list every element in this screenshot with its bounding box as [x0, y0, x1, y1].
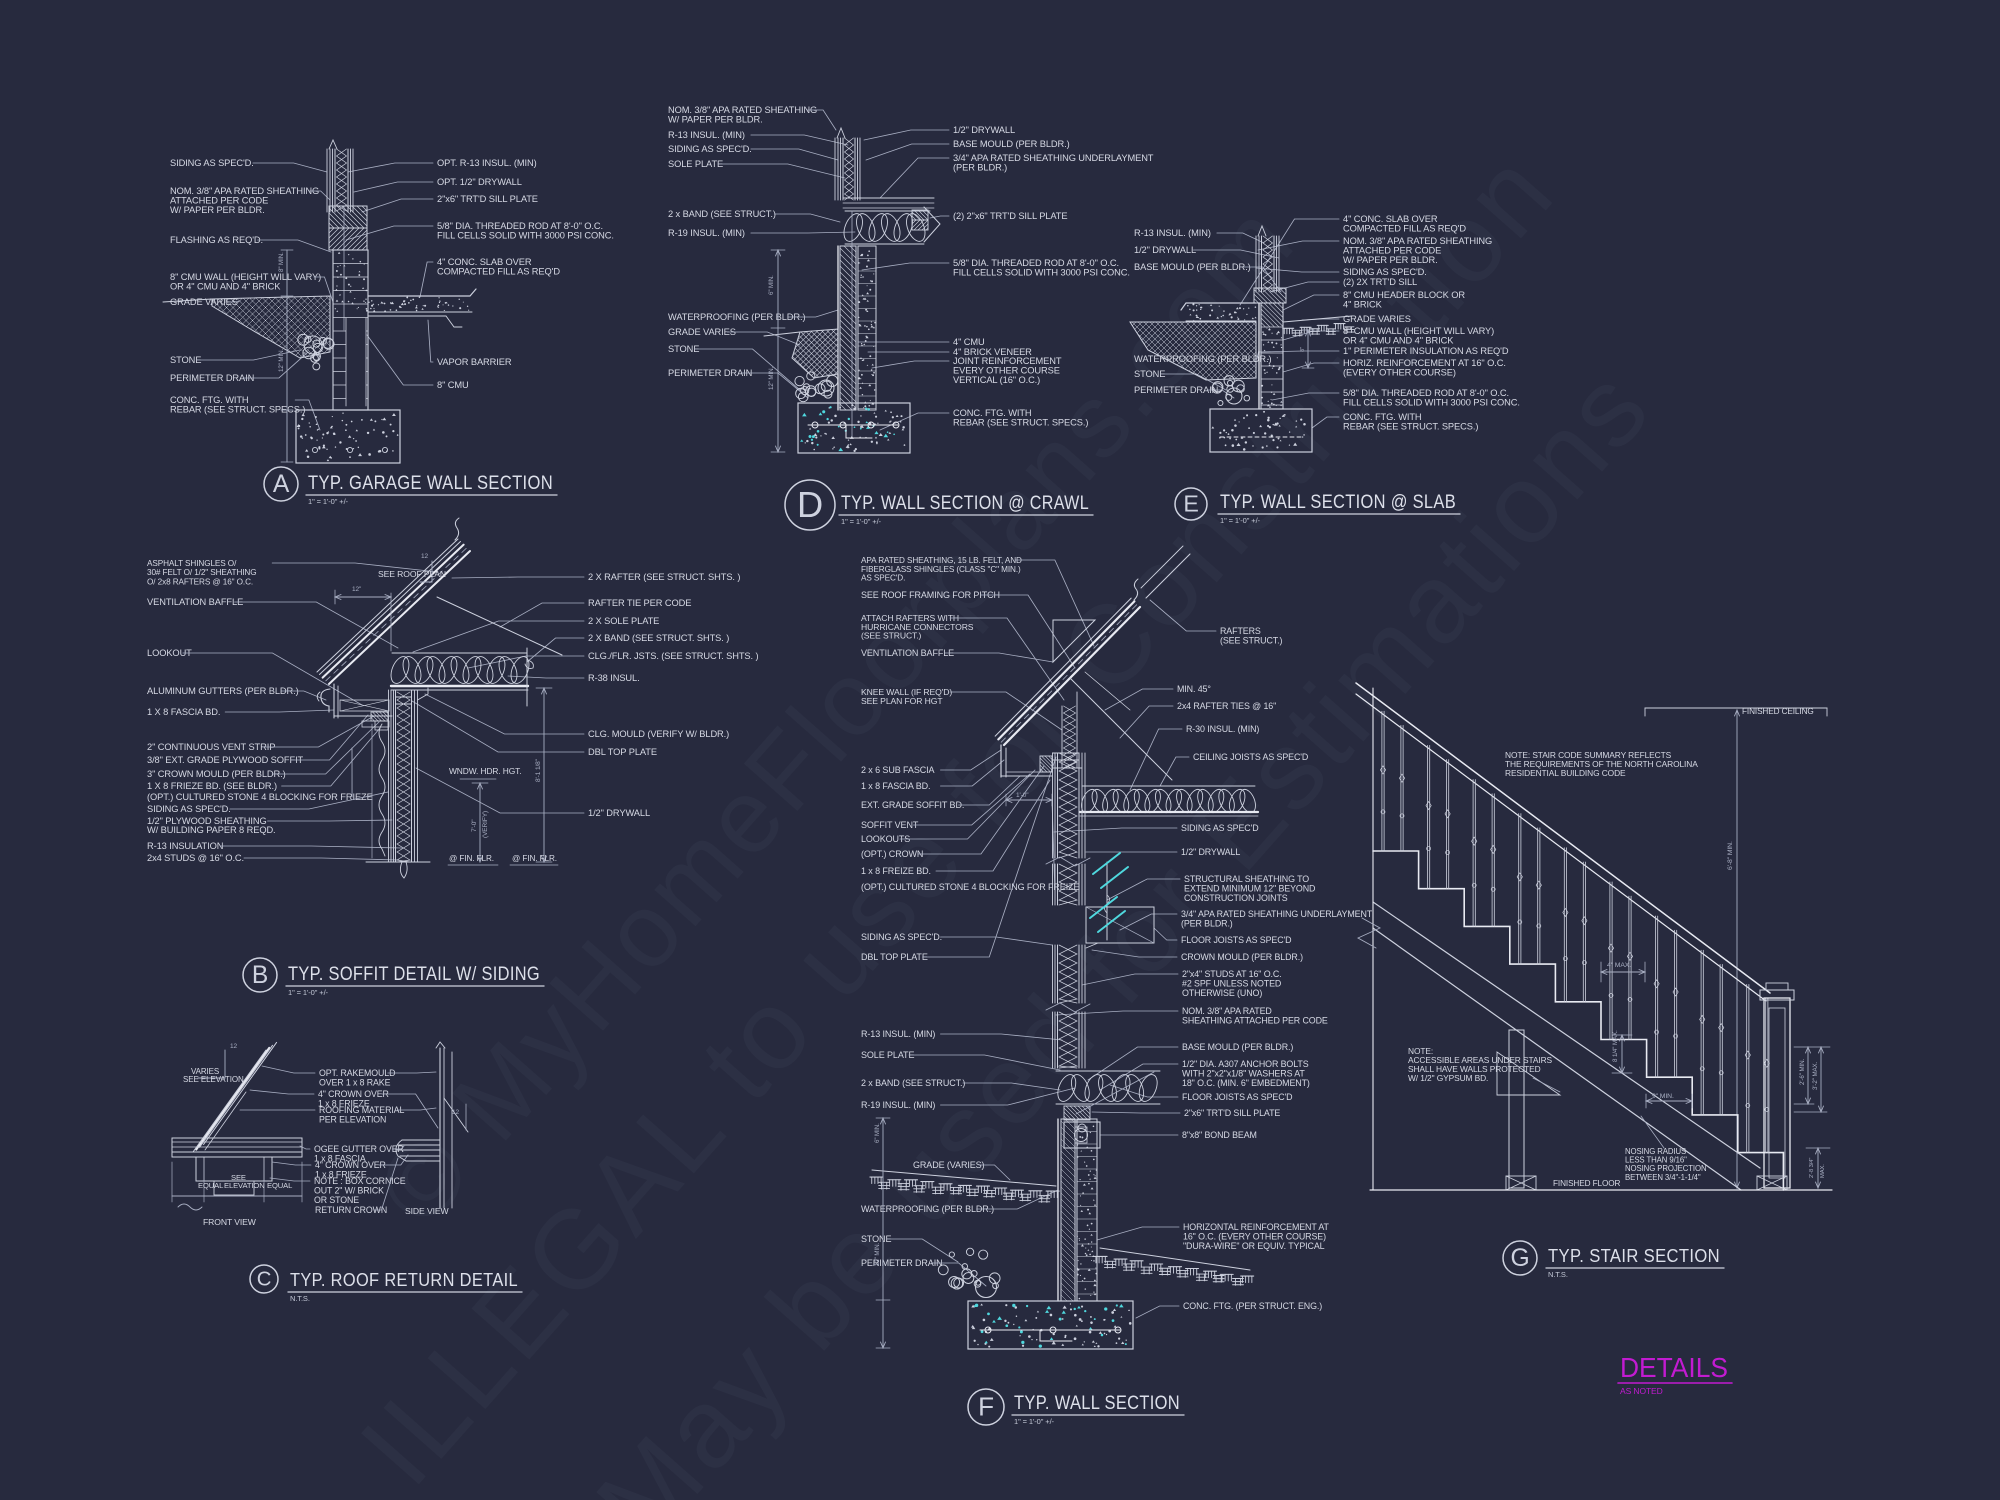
svg-text:6'-8" MIN.: 6'-8" MIN. — [1727, 841, 1734, 870]
svg-text:2x4 STUDS @ 16" O.C.: 2x4 STUDS @ 16" O.C. — [147, 853, 244, 863]
svg-text:12: 12 — [230, 1043, 238, 1050]
svg-text:2'-8 3/4": 2'-8 3/4" — [1809, 1158, 1815, 1178]
svg-text:TYP. GARAGE WALL SECTION: TYP. GARAGE WALL SECTION — [308, 472, 553, 494]
svg-text:12" MIN.: 12" MIN. — [768, 367, 775, 390]
svg-text:PERIMETER DRAIN: PERIMETER DRAIN — [668, 368, 752, 378]
svg-text:7'-0": 7'-0" — [471, 819, 478, 832]
svg-text:COMPACTED FILL AS REQ'D: COMPACTED FILL AS REQ'D — [1343, 224, 1466, 234]
svg-text:SIDING AS SPEC'D.: SIDING AS SPEC'D. — [170, 158, 254, 168]
svg-text:3" CROWN MOULD (PER BLDR.): 3" CROWN MOULD (PER BLDR.) — [147, 769, 286, 779]
svg-text:HORIZ. REINFORCEMENT AT 16" O.: HORIZ. REINFORCEMENT AT 16" O.C. — [1343, 358, 1506, 368]
svg-text:BASE MOULD (PER BLDR.): BASE MOULD (PER BLDR.) — [953, 139, 1070, 149]
svg-text:12: 12 — [452, 1109, 460, 1116]
svg-text:NOM. 3/8" APA RATED SHEATHING: NOM. 3/8" APA RATED SHEATHING — [668, 105, 817, 115]
svg-text:TYP. STAIR SECTION: TYP. STAIR SECTION — [1548, 1246, 1720, 1266]
svg-text:E: E — [1183, 491, 1198, 517]
svg-text:F: F — [978, 1392, 994, 1422]
svg-text:5/8" DIA. THREADED ROD AT 8'-0: 5/8" DIA. THREADED ROD AT 8'-0" O.C. — [953, 258, 1119, 268]
svg-text:WATERPROOFING (PER BLDR.): WATERPROOFING (PER BLDR.) — [861, 1204, 994, 1214]
svg-text:4" MAX.: 4" MAX. — [1607, 962, 1631, 969]
svg-text:3/8" EXT. GRADE PLYWOOD SOFFIT: 3/8" EXT. GRADE PLYWOOD SOFFIT — [147, 755, 304, 765]
svg-text:PER ELEVATION: PER ELEVATION — [319, 1115, 386, 1125]
svg-text:3/4" APA RATED SHEATHING UNDER: 3/4" APA RATED SHEATHING UNDERLAYMENT — [953, 153, 1154, 163]
svg-text:MAX.: MAX. — [1820, 1164, 1826, 1178]
svg-text:FILL CELLS SOLID WITH 3000 PSI: FILL CELLS SOLID WITH 3000 PSI CONC. — [437, 231, 614, 241]
svg-text:NOM. 3/8" APA RATED SHEATHING: NOM. 3/8" APA RATED SHEATHING — [170, 186, 319, 196]
svg-text:5/8" DIA. THREADED ROD AT 8'-0: 5/8" DIA. THREADED ROD AT 8'-0" O.C. — [1343, 388, 1509, 398]
svg-text:6" MIN.: 6" MIN. — [768, 275, 775, 295]
svg-text:SIDING AS SPEC'D: SIDING AS SPEC'D — [1181, 823, 1259, 833]
svg-text:TYP. ROOF RETURN DETAIL: TYP. ROOF RETURN DETAIL — [290, 1270, 518, 1290]
svg-text:R-19 INSUL. (MIN): R-19 INSUL. (MIN) — [668, 228, 745, 238]
svg-text:(SEE STRUCT.): (SEE STRUCT.) — [861, 631, 922, 641]
svg-text:(SEE STRUCT.): (SEE STRUCT.) — [1220, 635, 1282, 645]
svg-text:VENTILATION BAFFLE: VENTILATION BAFFLE — [147, 597, 243, 607]
svg-text:30# FELT O/ 1/2" SHEATHING: 30# FELT O/ 1/2" SHEATHING — [147, 568, 257, 577]
svg-text:R-13 INSULATION: R-13 INSULATION — [147, 841, 223, 851]
svg-text:FILL CELLS SOLID WITH 3000 PSI: FILL CELLS SOLID WITH 3000 PSI CONC. — [1343, 398, 1520, 408]
svg-text:SEE ROOF PLAN: SEE ROOF PLAN — [378, 569, 446, 579]
svg-text:8" CMU WALL (HEIGHT WILL VARY): 8" CMU WALL (HEIGHT WILL VARY) — [170, 272, 321, 282]
svg-text:B: B — [252, 962, 268, 989]
svg-text:3'-2" MAX.: 3'-2" MAX. — [1812, 1061, 1819, 1090]
svg-text:GRADE (VARIES): GRADE (VARIES) — [913, 1160, 985, 1170]
svg-text:TYP. WALL SECTION @ SLAB: TYP. WALL SECTION @ SLAB — [1220, 491, 1456, 513]
svg-text:MIN. 45°: MIN. 45° — [1177, 684, 1211, 694]
svg-text:(EVERY OTHER COURSE): (EVERY OTHER COURSE) — [1343, 368, 1456, 378]
svg-text:GRADE VARIES: GRADE VARIES — [668, 327, 736, 337]
svg-text:2 x BAND (SEE STRUCT.): 2 x BAND (SEE STRUCT.) — [668, 209, 776, 219]
svg-text:9" MIN.: 9" MIN. — [1652, 1093, 1674, 1100]
svg-text:(VERIFY): (VERIFY) — [482, 811, 489, 838]
svg-text:FRONT VIEW: FRONT VIEW — [203, 1217, 257, 1227]
svg-text:TYP. WALL SECTION: TYP. WALL SECTION — [1014, 1392, 1180, 1414]
svg-text:@ FIN. FLR.: @ FIN. FLR. — [512, 854, 557, 863]
svg-text:(2) 2"x6" TRT'D SILL PLATE: (2) 2"x6" TRT'D SILL PLATE — [953, 211, 1067, 221]
svg-text:OGEE GUTTER OVER: OGEE GUTTER OVER — [314, 1144, 404, 1154]
svg-text:CONC. FTG. WITH: CONC. FTG. WITH — [953, 408, 1032, 418]
svg-text:1'-0": 1'-0" — [1016, 792, 1029, 799]
svg-text:SHEATHING ATTACHED PER CODE: SHEATHING ATTACHED PER CODE — [1182, 1015, 1328, 1025]
svg-text:6" MIN.: 6" MIN. — [874, 1123, 881, 1143]
svg-text:5/8" DIA. THREADED ROD AT 8'-0: 5/8" DIA. THREADED ROD AT 8'-0" O.C. — [437, 221, 603, 231]
svg-text:2"x6" TRT'D SILL PLATE: 2"x6" TRT'D SILL PLATE — [437, 194, 538, 204]
svg-text:2x4 RAFTER TIES @ 16": 2x4 RAFTER TIES @ 16" — [1177, 701, 1276, 711]
svg-text:1 x 8 FASCIA BD.: 1 x 8 FASCIA BD. — [861, 781, 930, 791]
svg-text:1" = 1'-0" +/-: 1" = 1'-0" +/- — [308, 497, 349, 506]
svg-text:1 x 8 FREIZE BD.: 1 x 8 FREIZE BD. — [861, 866, 931, 876]
svg-text:4" BRICK: 4" BRICK — [1343, 300, 1383, 310]
svg-text:4" CROWN OVER: 4" CROWN OVER — [318, 1089, 389, 1099]
svg-text:EVERY OTHER COURSE: EVERY OTHER COURSE — [953, 366, 1060, 376]
svg-text:D: D — [797, 484, 823, 525]
svg-text:(OPT.) CULTURED STONE 4 BLOCKI: (OPT.) CULTURED STONE 4 BLOCKING FOR FRI… — [147, 792, 373, 802]
svg-text:EXT. GRADE SOFFIT BD.: EXT. GRADE SOFFIT BD. — [861, 800, 964, 810]
svg-text:FLOOR JOISTS AS SPEC'D: FLOOR JOISTS AS SPEC'D — [1181, 935, 1291, 945]
svg-text:JOINT REINFORCEMENT: JOINT REINFORCEMENT — [953, 356, 1062, 366]
svg-text:DETAILS: DETAILS — [1620, 1352, 1728, 1383]
svg-text:FIBERGLASS SHINGLES (CLASS "C": FIBERGLASS SHINGLES (CLASS "C" MIN.) — [861, 565, 1021, 574]
svg-text:1 X 8 FRIEZE BD. (SEE BLDR.): 1 X 8 FRIEZE BD. (SEE BLDR.) — [147, 781, 277, 791]
svg-text:1 X 8 FASCIA BD.: 1 X 8 FASCIA BD. — [147, 707, 220, 717]
svg-text:W/ BUILDING PAPER 8 REQD.: W/ BUILDING PAPER 8 REQD. — [147, 825, 276, 835]
svg-text:(PER BLDR.): (PER BLDR.) — [1181, 918, 1233, 928]
svg-text:BETWEEN 3/4"-1-1/4": BETWEEN 3/4"-1-1/4" — [1625, 1173, 1701, 1182]
svg-text:CROWN MOULD (PER BLDR.): CROWN MOULD (PER BLDR.) — [1181, 952, 1303, 962]
svg-text:BASE MOULD (PER BLDR.): BASE MOULD (PER BLDR.) — [1182, 1042, 1293, 1052]
svg-text:1/2" DRYWALL: 1/2" DRYWALL — [1134, 245, 1196, 255]
svg-text:SIDING AS SPEC'D.: SIDING AS SPEC'D. — [1343, 267, 1427, 277]
svg-text:FILL CELLS SOLID WITH 3000 PSI: FILL CELLS SOLID WITH 3000 PSI CONC. — [953, 268, 1130, 278]
svg-text:G: G — [1510, 1245, 1529, 1272]
svg-text:ROOFING MATERIAL: ROOFING MATERIAL — [319, 1105, 404, 1115]
svg-text:CONSTRUCTION JOINTS: CONSTRUCTION JOINTS — [1184, 893, 1288, 903]
svg-text:(2) 2X TRT'D SILL: (2) 2X TRT'D SILL — [1343, 277, 1417, 287]
svg-text:R-13 INSUL. (MIN): R-13 INSUL. (MIN) — [861, 1029, 935, 1039]
svg-text:DBL TOP PLATE: DBL TOP PLATE — [861, 952, 928, 962]
svg-text:SEE PLAN FOR HGT: SEE PLAN FOR HGT — [861, 696, 943, 706]
svg-text:GRADE VARIES: GRADE VARIES — [1343, 314, 1411, 324]
svg-text:REBAR (SEE STRUCT. SPECS.): REBAR (SEE STRUCT. SPECS.) — [953, 418, 1088, 428]
svg-text:NOM. 3/8" APA RATED SHEATHING: NOM. 3/8" APA RATED SHEATHING — [1343, 236, 1492, 246]
svg-text:2" CONTINUOUS VENT STRIP: 2" CONTINUOUS VENT STRIP — [147, 742, 275, 752]
svg-text:@ FIN. FLR.: @ FIN. FLR. — [449, 854, 494, 863]
svg-text:A: A — [273, 471, 290, 498]
svg-text:WATERPROOFING (PER BLDR.): WATERPROOFING (PER BLDR.) — [668, 312, 805, 322]
svg-text:W/ PAPER PER BLDR.: W/ PAPER PER BLDR. — [1343, 255, 1438, 265]
svg-text:4" CONC. SLAB OVER: 4" CONC. SLAB OVER — [437, 257, 532, 267]
svg-text:CLG. MOULD (VERIFY W/ BLDR.): CLG. MOULD (VERIFY W/ BLDR.) — [588, 729, 729, 739]
svg-text:O/ 2x8 RAFTERS @ 16" O.C.: O/ 2x8 RAFTERS @ 16" O.C. — [147, 577, 253, 586]
svg-text:RESIDENTIAL BUILDING CODE: RESIDENTIAL BUILDING CODE — [1505, 768, 1626, 778]
svg-text:VERTICAL (16" O.C.): VERTICAL (16" O.C.) — [953, 375, 1040, 385]
svg-text:1" PERIMETER INSULATION AS REQ: 1" PERIMETER INSULATION AS REQ'D — [1343, 346, 1509, 356]
svg-text:8": 8" — [1300, 347, 1306, 352]
svg-text:ATTACHED PER CODE: ATTACHED PER CODE — [1343, 246, 1441, 256]
svg-text:R-13 INSUL. (MIN): R-13 INSUL. (MIN) — [1134, 228, 1211, 238]
svg-text:CLG./FLR. JSTS. (SEE STRUCT. S: CLG./FLR. JSTS. (SEE STRUCT. SHTS. ) — [588, 651, 758, 661]
svg-text:1" = 1'-0" +/-: 1" = 1'-0" +/- — [841, 517, 882, 526]
svg-text:W/ 1/2" GYPSUM BD.: W/ 1/2" GYPSUM BD. — [1408, 1073, 1488, 1083]
svg-text:REBAR (SEE STRUCT. SPECS.): REBAR (SEE STRUCT. SPECS.) — [1343, 422, 1478, 432]
svg-text:8" CMU: 8" CMU — [437, 380, 469, 390]
svg-text:W/ PAPER PER BLDR.: W/ PAPER PER BLDR. — [170, 205, 265, 215]
svg-text:CONC. FTG. WITH: CONC. FTG. WITH — [170, 395, 249, 405]
svg-text:"DURA-WIRE" OR EQUIV. TYPICAL: "DURA-WIRE" OR EQUIV. TYPICAL — [1183, 1241, 1325, 1251]
svg-text:2 x 6 SUB FASCIA: 2 x 6 SUB FASCIA — [861, 765, 935, 775]
svg-text:OR 4" CMU AND 4" BRICK: OR 4" CMU AND 4" BRICK — [170, 282, 281, 292]
svg-text:SOFFIT VENT: SOFFIT VENT — [861, 820, 919, 830]
svg-text:ATTACHED PER CODE: ATTACHED PER CODE — [170, 196, 268, 206]
svg-text:FINISHED FLOOR: FINISHED FLOOR — [1553, 1179, 1620, 1188]
svg-text:(OPT.) CULTURED STONE 4 BLOCKI: (OPT.) CULTURED STONE 4 BLOCKING FOR FRE… — [861, 882, 1079, 892]
svg-text:VENTILATION BAFFLE: VENTILATION BAFFLE — [861, 648, 954, 658]
svg-text:W/ PAPER PER BLDR.: W/ PAPER PER BLDR. — [668, 115, 763, 125]
svg-text:N.T.S.: N.T.S. — [290, 1294, 310, 1303]
svg-text:18" O.C. (MIN. 6" EMBEDMENT): 18" O.C. (MIN. 6" EMBEDMENT) — [1182, 1078, 1310, 1088]
svg-text:2'-6" MIN.: 2'-6" MIN. — [1799, 1059, 1806, 1085]
svg-text:SOLE PLATE: SOLE PLATE — [668, 159, 723, 169]
svg-text:8" CMU WALL (HEIGHT WILL VARY): 8" CMU WALL (HEIGHT WILL VARY) — [1343, 326, 1494, 336]
svg-text:SOLE PLATE: SOLE PLATE — [861, 1050, 914, 1060]
svg-text:2"x6" TRT'D SILL PLATE: 2"x6" TRT'D SILL PLATE — [1184, 1108, 1280, 1118]
svg-text:CEILING JOISTS AS SPEC'D: CEILING JOISTS AS SPEC'D — [1193, 752, 1308, 762]
svg-text:R-38 INSUL.: R-38 INSUL. — [588, 673, 640, 683]
svg-text:CONC. FTG. WITH: CONC. FTG. WITH — [1343, 412, 1422, 422]
svg-text:12" MIN.: 12" MIN. — [874, 1243, 881, 1266]
svg-text:EQUAL: EQUAL — [198, 1181, 223, 1190]
svg-text:R-19 INSUL. (MIN): R-19 INSUL. (MIN) — [861, 1100, 935, 1110]
svg-text:RAFTER TIE PER CODE: RAFTER TIE PER CODE — [588, 598, 691, 608]
svg-text:4" CONC. SLAB OVER: 4" CONC. SLAB OVER — [1343, 214, 1438, 224]
svg-text:COMPACTED FILL AS REQ'D: COMPACTED FILL AS REQ'D — [437, 267, 560, 277]
svg-text:OUT 2" W/ BRICK: OUT 2" W/ BRICK — [314, 1186, 384, 1196]
svg-text:FLOOR JOISTS AS SPEC'D: FLOOR JOISTS AS SPEC'D — [1182, 1092, 1292, 1102]
svg-text:PERIMETER DRAIN: PERIMETER DRAIN — [170, 373, 254, 383]
svg-text:TYP. SOFFIT DETAIL W/ SIDING: TYP. SOFFIT DETAIL W/ SIDING — [288, 963, 540, 985]
svg-text:OPT. 1/2" DRYWALL: OPT. 1/2" DRYWALL — [437, 177, 522, 187]
svg-text:2 x BAND (SEE STRUCT.): 2 x BAND (SEE STRUCT.) — [861, 1078, 965, 1088]
svg-text:SIDE VIEW: SIDE VIEW — [405, 1206, 449, 1216]
svg-text:OPT. R-13 INSUL. (MIN): OPT. R-13 INSUL. (MIN) — [437, 158, 537, 168]
svg-text:AS SPEC'D.: AS SPEC'D. — [861, 574, 905, 583]
svg-text:FLASHING AS REQ'D.: FLASHING AS REQ'D. — [170, 235, 263, 245]
svg-text:OR 4" CMU AND 4" BRICK: OR 4" CMU AND 4" BRICK — [1343, 336, 1454, 346]
svg-text:2 X SOLE PLATE: 2 X SOLE PLATE — [588, 616, 659, 626]
svg-text:1" = 1'-0" +/-: 1" = 1'-0" +/- — [1220, 516, 1261, 525]
svg-text:OPT. RAKEMOULD: OPT. RAKEMOULD — [319, 1068, 395, 1078]
svg-text:TYP. WALL SECTION @ CRAWL: TYP. WALL SECTION @ CRAWL — [841, 492, 1089, 514]
svg-text:1/2" DRYWALL: 1/2" DRYWALL — [1181, 847, 1240, 857]
svg-text:SIDING AS SPEC'D.: SIDING AS SPEC'D. — [861, 932, 942, 942]
svg-text:8" MIN.: 8" MIN. — [278, 252, 285, 272]
svg-text:4" CROWN OVER: 4" CROWN OVER — [315, 1160, 386, 1170]
svg-text:OTHERWISE (UNO): OTHERWISE (UNO) — [1182, 988, 1262, 998]
svg-text:(OPT.) CROWN: (OPT.) CROWN — [861, 849, 923, 859]
svg-text:2 X BAND (SEE STRUCT. SHTS. ): 2 X BAND (SEE STRUCT. SHTS. ) — [588, 633, 729, 643]
svg-text:1" = 1'-0" +/-: 1" = 1'-0" +/- — [288, 988, 329, 997]
svg-text:APA RATED SHEATHING, 15 LB. FE: APA RATED SHEATHING, 15 LB. FELT, AND — [861, 556, 1022, 565]
svg-text:OR STONE: OR STONE — [314, 1195, 359, 1205]
svg-text:PERIMETER DRAIN: PERIMETER DRAIN — [1134, 385, 1218, 395]
svg-text:C: C — [257, 1269, 272, 1291]
svg-text:1" = 1'-0" +/-: 1" = 1'-0" +/- — [1014, 1417, 1055, 1426]
svg-text:8" CMU HEADER BLOCK OR: 8" CMU HEADER BLOCK OR — [1343, 290, 1465, 300]
svg-text:SEE ROOF FRAMING FOR PITCH: SEE ROOF FRAMING FOR PITCH — [861, 590, 1000, 600]
svg-text:8"x8" BOND BEAM: 8"x8" BOND BEAM — [1182, 1130, 1257, 1140]
svg-text:ELEVATION: ELEVATION — [224, 1181, 265, 1190]
svg-text:1/2" DRYWALL: 1/2" DRYWALL — [588, 808, 650, 818]
svg-text:12": 12" — [352, 586, 362, 593]
svg-text:FINISHED CEILING: FINISHED CEILING — [1742, 707, 1814, 716]
svg-text:VAPOR BARRIER: VAPOR BARRIER — [437, 357, 512, 367]
svg-text:R-13 INSUL. (MIN): R-13 INSUL. (MIN) — [668, 130, 745, 140]
svg-text:R-30 INSUL. (MIN): R-30 INSUL. (MIN) — [1186, 724, 1259, 734]
svg-text:DBL TOP PLATE: DBL TOP PLATE — [588, 747, 657, 757]
svg-text:BASE MOULD (PER BLDR.): BASE MOULD (PER BLDR.) — [1134, 262, 1251, 272]
svg-text:(PER BLDR.): (PER BLDR.) — [953, 163, 1007, 173]
svg-text:EQUAL: EQUAL — [267, 1181, 292, 1190]
svg-text:SIDING AS SPEC'D.: SIDING AS SPEC'D. — [147, 804, 231, 814]
svg-text:N.T.S.: N.T.S. — [1548, 1270, 1568, 1279]
svg-text:8'-1 1/8": 8'-1 1/8" — [535, 758, 542, 782]
svg-text:8 1/4" MAX.: 8 1/4" MAX. — [1612, 1030, 1619, 1062]
svg-text:12" MIN.: 12" MIN. — [278, 349, 285, 372]
svg-text:WNDW. HDR. HGT.: WNDW. HDR. HGT. — [449, 766, 521, 776]
svg-text:ASPHALT SHINGLES O/: ASPHALT SHINGLES O/ — [147, 559, 237, 568]
svg-text:SIDING AS SPEC'D.: SIDING AS SPEC'D. — [668, 144, 752, 154]
svg-text:AS NOTED: AS NOTED — [1620, 1386, 1663, 1396]
svg-text:12: 12 — [421, 553, 429, 560]
svg-text:1/2" DRYWALL: 1/2" DRYWALL — [953, 125, 1015, 135]
svg-text:OVER 1 x 8 RAKE: OVER 1 x 8 RAKE — [319, 1078, 391, 1088]
svg-text:CONC. FTG. (PER STRUCT. ENG.): CONC. FTG. (PER STRUCT. ENG.) — [1183, 1301, 1322, 1311]
svg-text:ALUMINUM GUTTERS (PER BLDR.): ALUMINUM GUTTERS (PER BLDR.) — [147, 686, 299, 696]
svg-text:4" CMU: 4" CMU — [953, 337, 985, 347]
svg-text:2 X RAFTER (SEE STRUCT. SHTS.: 2 X RAFTER (SEE STRUCT. SHTS. ) — [588, 572, 740, 582]
svg-text:SEE ELEVATION: SEE ELEVATION — [183, 1075, 244, 1084]
